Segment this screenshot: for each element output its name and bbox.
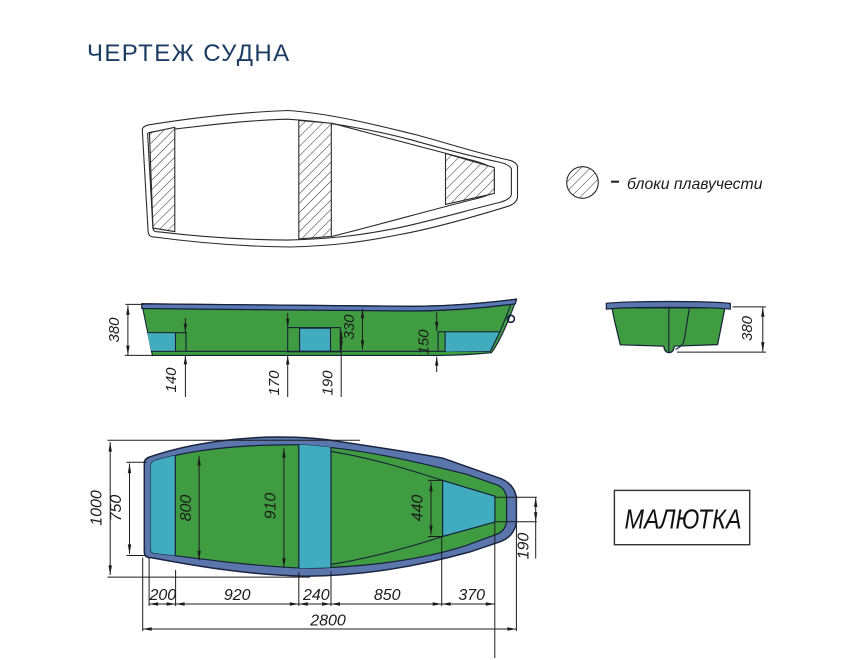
svg-text:240: 240 [302,587,330,604]
svg-text:370: 370 [458,587,485,604]
svg-text:380: 380 [739,315,756,341]
svg-text:850: 850 [374,587,401,604]
svg-text:330: 330 [341,314,358,340]
svg-text:1000: 1000 [89,490,106,526]
svg-text:2800: 2800 [309,613,346,630]
svg-text:750: 750 [108,495,125,522]
svg-text:МАЛЮТКА: МАЛЮТКА [624,505,741,535]
svg-text:380: 380 [106,317,123,343]
svg-text:800: 800 [178,495,195,522]
svg-text:ЧЕРТЕЖ СУДНА: ЧЕРТЕЖ СУДНА [87,40,291,67]
svg-text:440: 440 [410,495,427,522]
svg-text:170: 170 [266,370,283,396]
svg-text:140: 140 [163,367,180,393]
svg-text:190: 190 [516,533,533,560]
svg-text:190: 190 [320,370,337,396]
svg-text:блоки плавучести: блоки плавучести [627,176,763,193]
svg-text:920: 920 [224,587,251,604]
svg-text:150: 150 [416,329,433,355]
svg-text:910: 910 [263,493,280,520]
svg-text:200: 200 [148,587,176,604]
